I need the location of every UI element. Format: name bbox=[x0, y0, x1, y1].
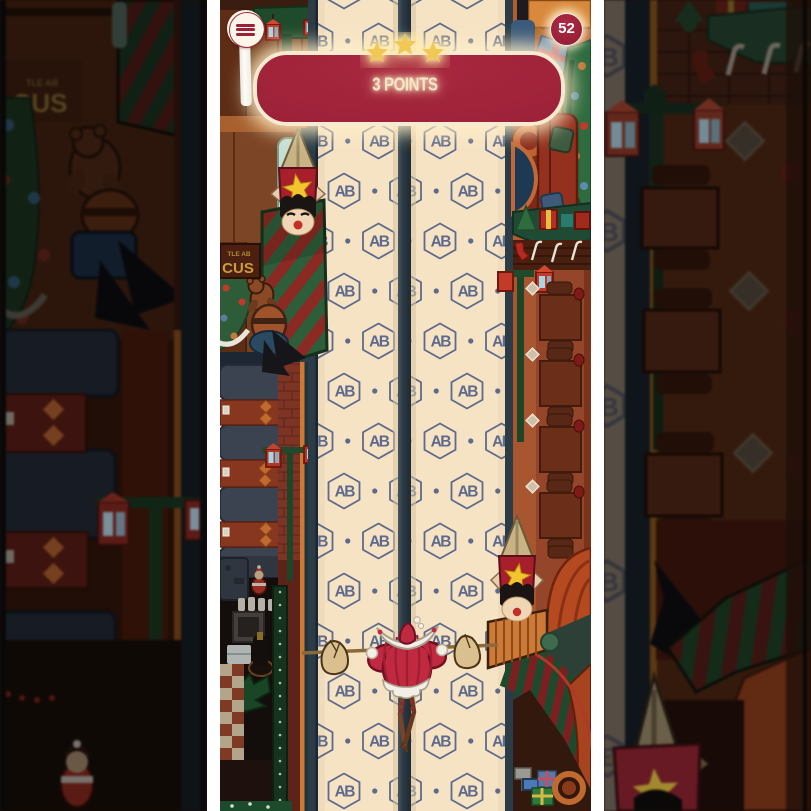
svg-text:B: B bbox=[604, 567, 619, 597]
svg-text:TLE AB: TLE AB bbox=[26, 78, 59, 88]
svg-text:TLE AB: TLE AB bbox=[227, 251, 251, 258]
svg-text:B: B bbox=[604, 42, 619, 72]
svg-text:CUS: CUS bbox=[222, 260, 254, 277]
svg-text:B: B bbox=[604, 392, 619, 422]
svg-text:B: B bbox=[604, 217, 619, 247]
